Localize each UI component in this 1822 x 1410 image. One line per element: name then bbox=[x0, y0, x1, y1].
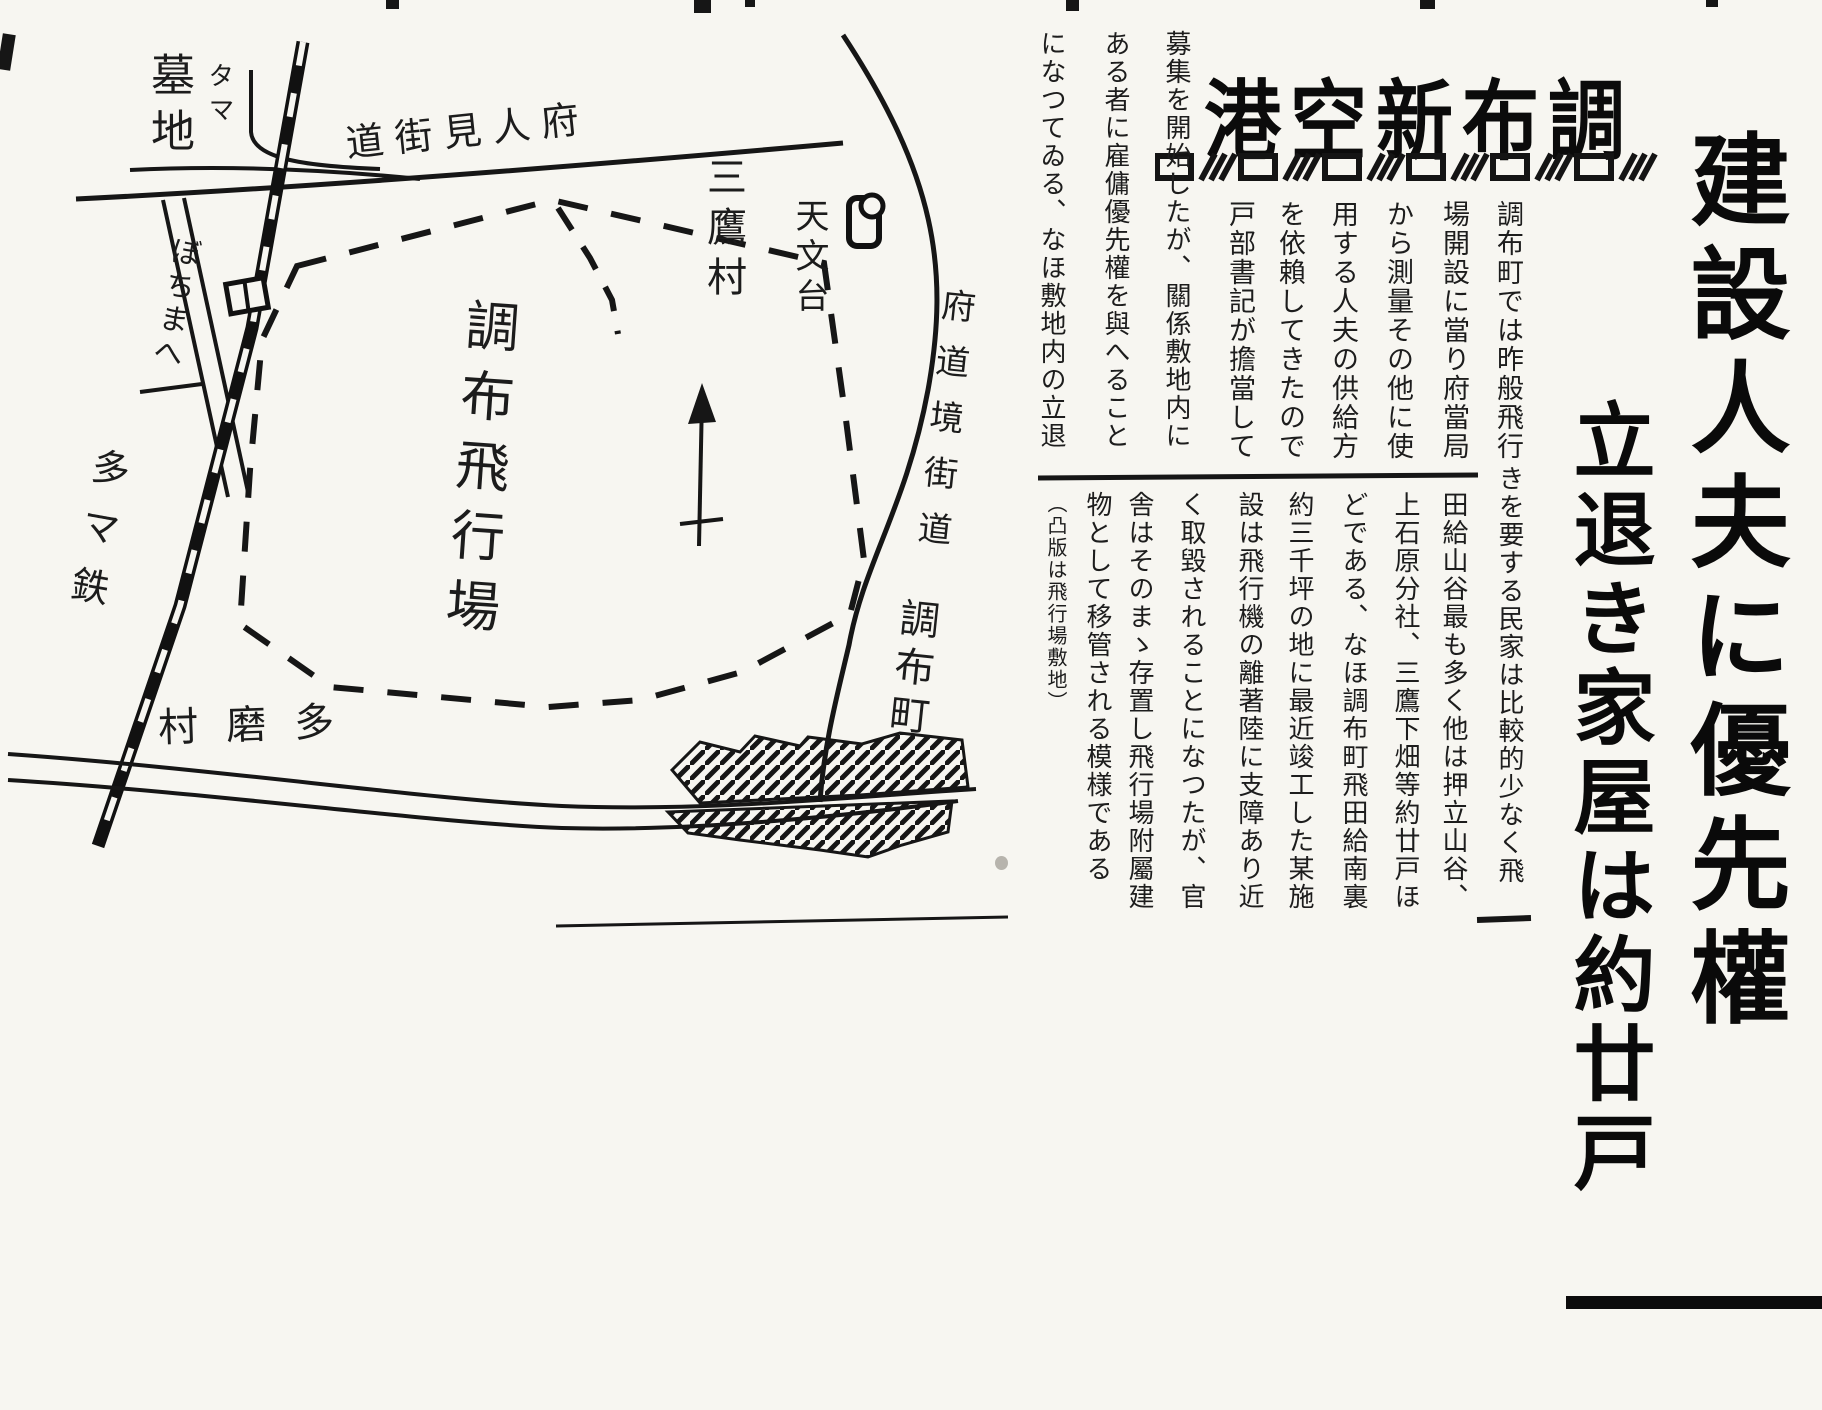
zigzag-border bbox=[1155, 146, 1660, 186]
article-column: ある者に雇傭優先權を與へること bbox=[1102, 30, 1128, 450]
newspaper-scan-page: タマ 墓地 ぼちまへ 多マ鉄 村磨多 道街見人府 三鷹村 天文台 調布飛行場 府… bbox=[0, 0, 1822, 1410]
article-column: から測量その他に使 bbox=[1384, 200, 1411, 461]
bottom-road-line bbox=[556, 917, 1008, 926]
article-column: 募集を開始したが、關係敷地内に bbox=[1163, 30, 1189, 450]
scan-artifact bbox=[745, 0, 755, 7]
headline-sub: 立退き家屋は約廿戸 bbox=[1566, 398, 1648, 1199]
article-caption-column: （凸版は飛行場敷地） bbox=[1046, 493, 1066, 713]
article-column: 舎はそのまゝ存置し飛行場附屬建 bbox=[1126, 491, 1152, 911]
article-end-rule bbox=[1477, 915, 1531, 923]
headline-main: 建設人夫に優先權 bbox=[1682, 128, 1782, 1040]
deck-divider bbox=[1038, 472, 1478, 480]
article-column: になつてゐる、なほ敷地内の立退 bbox=[1038, 30, 1064, 450]
cemetery-path-tick bbox=[140, 384, 202, 392]
article-column: 上石原分社、三鷹下畑等約廿戸ほ bbox=[1392, 491, 1418, 911]
article-column: 設は飛行機の離著陸に支障あり近 bbox=[1236, 491, 1262, 911]
map-label-cemetery: 墓地 bbox=[146, 52, 190, 164]
article-column: 戸部書記が擔當して bbox=[1226, 200, 1253, 461]
map-label-cemetery-kana: タマ bbox=[206, 62, 232, 130]
article-column: 物として移管される模様である bbox=[1084, 491, 1110, 883]
article-column: 約三千坪の地に最近竣工した某施 bbox=[1286, 491, 1312, 911]
article-column: きを要する民家は比較的少なく飛 bbox=[1496, 465, 1522, 885]
airfield-boundary-dashed bbox=[240, 200, 864, 707]
map-label-observatory: 天文台 bbox=[792, 198, 826, 318]
article-column: 用する人夫の供給方 bbox=[1329, 200, 1356, 461]
map-label-mitaka-village: 三鷹村 bbox=[703, 156, 743, 306]
article-column: 田給山谷最も多く他は押立山谷、 bbox=[1440, 491, 1466, 911]
observatory-icon bbox=[849, 195, 883, 246]
scan-artifact bbox=[386, 0, 399, 9]
article-column: を依賴してきたので bbox=[1276, 200, 1303, 461]
hatched-embankment-lower bbox=[668, 801, 952, 857]
article-column: どである、なほ調布町飛田給南裏 bbox=[1340, 491, 1366, 911]
column-divider-bar bbox=[1566, 1296, 1822, 1309]
article-column: 調布町では昨般飛行 bbox=[1494, 200, 1521, 461]
scan-artifact bbox=[1066, 0, 1079, 11]
north-arrow-icon bbox=[680, 383, 723, 546]
scan-artifact bbox=[694, 0, 711, 13]
scan-artifact bbox=[1706, 0, 1718, 7]
map-label-tama-village: 村磨多 bbox=[157, 688, 363, 753]
airfield-boundary-spur bbox=[558, 208, 618, 334]
scan-artifact bbox=[1420, 0, 1435, 9]
station-icon bbox=[226, 278, 269, 314]
scan-dust-spot bbox=[995, 856, 1008, 870]
article-column: 場開設に當り府當局 bbox=[1440, 200, 1467, 461]
article-column: く取毀されることになつたが、官 bbox=[1178, 491, 1204, 911]
